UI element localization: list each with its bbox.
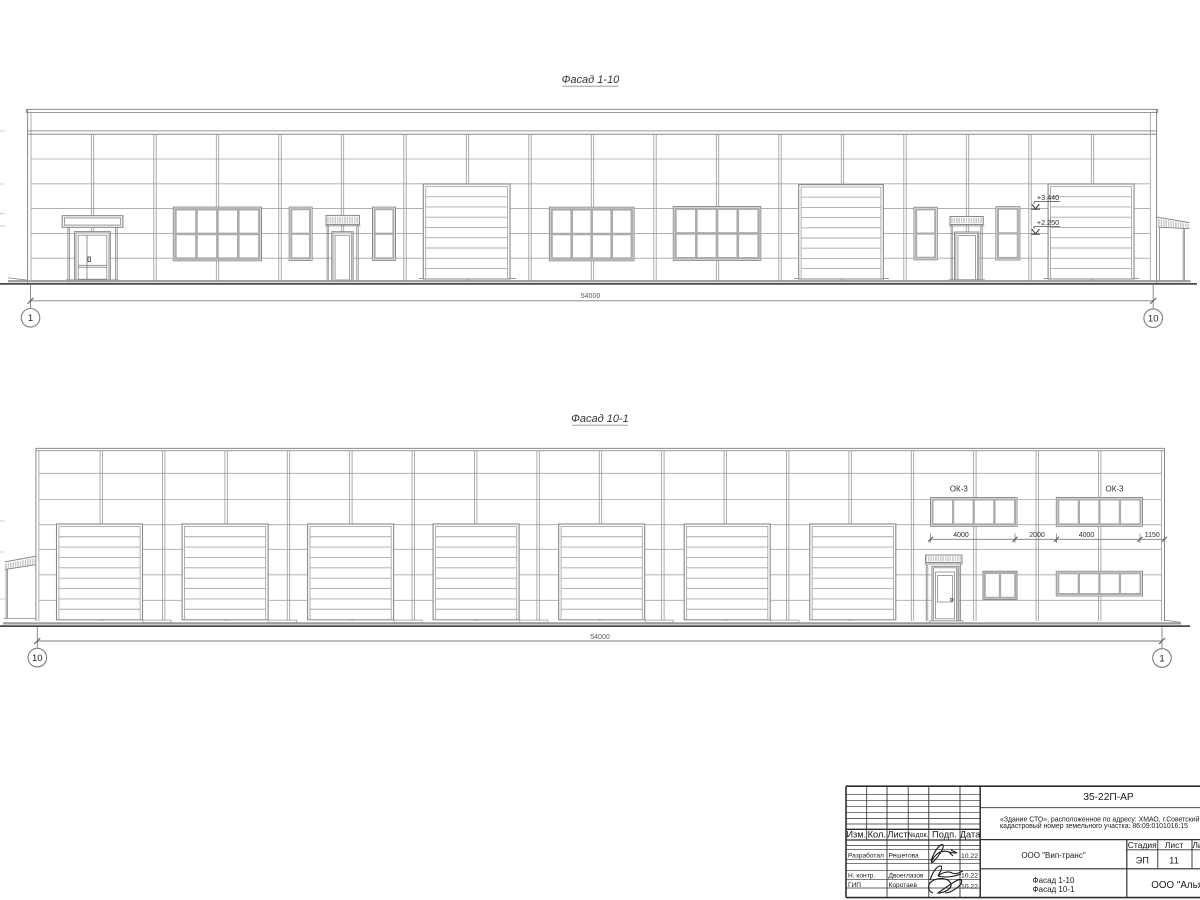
- svg-text:54000: 54000: [581, 293, 601, 300]
- svg-text:Решетова: Решетова: [889, 853, 920, 860]
- svg-text:Коротаев: Коротаев: [889, 882, 918, 889]
- svg-text:Н. контр.: Н. контр.: [848, 872, 875, 879]
- svg-text:Лист: Лист: [887, 829, 908, 839]
- svg-text:Стадия: Стадия: [1128, 840, 1157, 850]
- svg-text:Фасад 1-10: Фасад 1-10: [562, 74, 621, 86]
- svg-text:Фасад 10-1: Фасад 10-1: [1033, 885, 1075, 894]
- svg-text:11: 11: [1169, 856, 1179, 866]
- svg-text:10: 10: [1148, 314, 1159, 325]
- svg-text:Кол.: Кол.: [868, 829, 886, 839]
- svg-text:35-22П-АР: 35-22П-АР: [1083, 792, 1134, 803]
- svg-text:54000: 54000: [590, 634, 610, 641]
- svg-text:ООО "Вип-транс": ООО "Вип-транс": [1021, 851, 1086, 860]
- svg-text:ГИП: ГИП: [848, 882, 861, 889]
- svg-text:Фасад 10-1: Фасад 10-1: [571, 413, 629, 425]
- svg-text:10.22: 10.22: [961, 884, 978, 891]
- svg-text:10.22: 10.22: [961, 853, 978, 860]
- svg-text:Изм.: Изм.: [846, 829, 866, 839]
- svg-text:кадастровый номер земельного у: кадастровый номер земельного участка: 86…: [1000, 822, 1188, 830]
- svg-text:Двоеглазов: Двоеглазов: [889, 872, 925, 879]
- svg-text:Ли: Ли: [1192, 840, 1200, 850]
- svg-text:ЭП: ЭП: [1136, 856, 1149, 866]
- svg-text:1: 1: [28, 313, 33, 324]
- svg-text:10: 10: [32, 653, 43, 664]
- svg-text:ООО "Альянс: ООО "Альянс: [1151, 880, 1200, 891]
- svg-text:+2.250: +2.250: [1037, 218, 1059, 227]
- svg-text:4000: 4000: [1079, 532, 1095, 539]
- svg-text:1: 1: [1159, 653, 1164, 664]
- svg-text:2000: 2000: [1029, 532, 1045, 539]
- svg-text:Подп.: Подп.: [932, 829, 957, 839]
- svg-text:Лист: Лист: [1165, 840, 1184, 850]
- svg-text:ОК-3: ОК-3: [1106, 485, 1125, 494]
- svg-text:+3.440: +3.440: [1037, 193, 1059, 202]
- svg-text:Дата: Дата: [960, 829, 981, 839]
- svg-text:1150: 1150: [1145, 532, 1160, 539]
- svg-text:10.22: 10.22: [961, 872, 978, 879]
- svg-text:Фасад 1-10: Фасад 1-10: [1033, 876, 1075, 885]
- svg-text:Разработал: Разработал: [848, 852, 884, 860]
- svg-text:ОК-3: ОК-3: [950, 485, 969, 494]
- svg-text:№док.: №док.: [908, 832, 929, 839]
- svg-text:4000: 4000: [953, 532, 969, 539]
